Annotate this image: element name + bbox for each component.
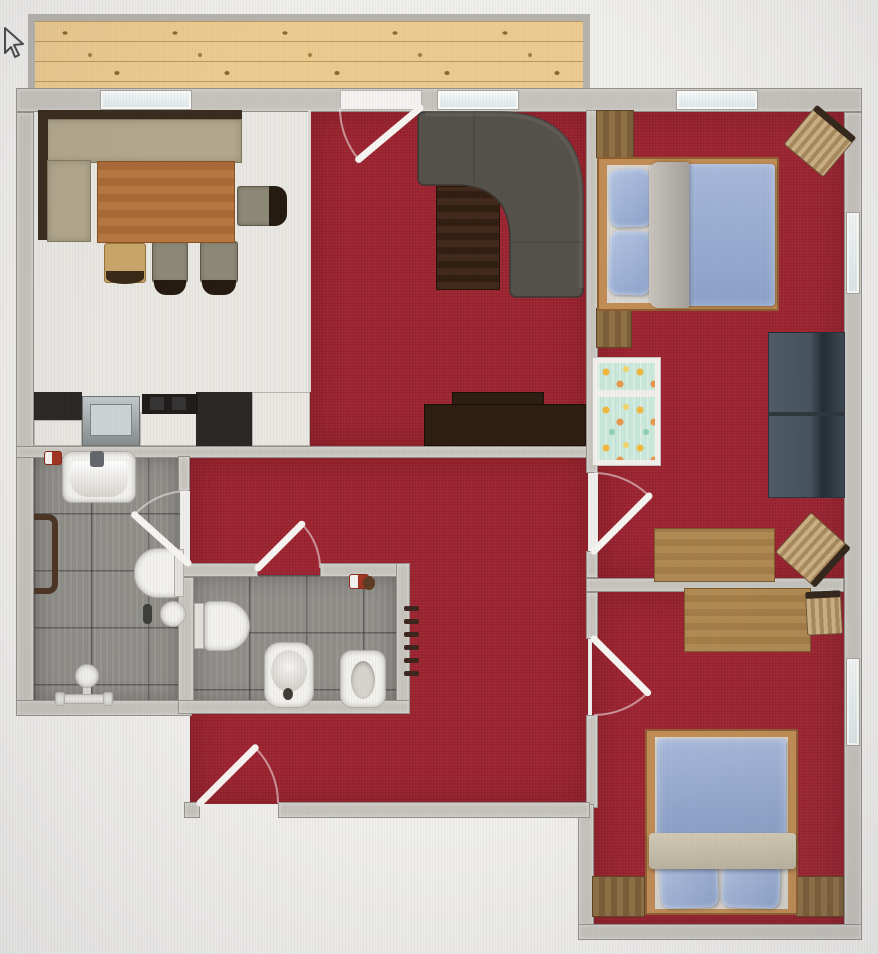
shower-cap-right <box>103 692 113 706</box>
dining-chair-2-seat <box>200 241 238 283</box>
bath-right-wall <box>178 456 190 491</box>
kitchen-cabinet-mid <box>140 412 204 446</box>
balcony-deck <box>28 14 590 90</box>
shower-cap-left <box>55 692 65 706</box>
kids-room-door-swing <box>588 467 660 559</box>
washbasin-faucet <box>90 451 104 467</box>
dining-table <box>97 161 235 243</box>
bedroom-bottom-wall <box>578 924 862 940</box>
stove-burner-b <box>172 397 186 410</box>
bedroom-side-window <box>846 658 860 746</box>
bedroom-left-wall-b <box>586 715 598 808</box>
wc-bidet-bowl <box>271 650 307 692</box>
bedroom-desk <box>684 588 811 652</box>
radiator-tick-4 <box>404 645 419 650</box>
left-wall <box>16 112 34 716</box>
wc-bidet-faucet <box>283 688 293 700</box>
kitchen-sink-basin <box>90 404 132 436</box>
baby-crib <box>593 358 660 465</box>
double-bed-duvet-blue <box>687 164 775 306</box>
kitchen-cabinet-right <box>252 392 310 446</box>
radiator-tick-5 <box>404 658 419 663</box>
bed2-duvet-blue <box>657 739 786 837</box>
kitchen-fridge-unit <box>196 392 252 446</box>
radiator-tick-2 <box>404 619 419 624</box>
corner-bench-seat-top <box>44 119 242 163</box>
dining-chair-right-seat <box>237 186 273 226</box>
double-bed-pillow-a <box>608 168 652 227</box>
wc-tissue-blob <box>363 576 375 590</box>
wc-door-swing <box>252 502 328 576</box>
wc-toilet-tank <box>194 603 204 649</box>
kids-room-side-window <box>846 212 860 294</box>
bedroom-desk-chair <box>805 590 843 636</box>
bedroom-wood-strip-left <box>592 876 645 917</box>
wc-urinal-bowl <box>351 661 375 699</box>
towel-radiator <box>34 514 58 594</box>
radiator-tick-6 <box>404 671 419 676</box>
mouse-cursor <box>2 26 26 60</box>
kids-desk <box>654 528 775 582</box>
soap-dish <box>44 451 62 465</box>
curved-sectional-sofa <box>414 106 590 302</box>
corner-bench-seat-left <box>47 160 91 242</box>
dining-chair-right-frame <box>269 186 287 226</box>
double-bed-pillow-b <box>608 230 652 295</box>
dining-chair-1-seat <box>152 241 188 283</box>
bedroom-left-wall-a <box>586 592 598 639</box>
tv-board-main <box>424 404 586 446</box>
double-bed-duvet-gray <box>649 162 689 308</box>
floor-split-line <box>308 110 311 392</box>
radiator-tick-1 <box>404 606 419 611</box>
bathroom-door-swing <box>112 487 196 571</box>
radiator-tick-3 <box>404 632 419 637</box>
kitchen-counter-dark <box>34 392 82 420</box>
wardrobe-lower <box>596 308 632 348</box>
balcony-door-swing <box>335 103 427 195</box>
wooden-chair-back <box>106 271 144 284</box>
bedroom-door-swing <box>588 633 656 723</box>
kitchen-cabinet-left <box>34 420 82 446</box>
toilet-brush <box>143 604 152 624</box>
bed2-blanket <box>649 833 796 869</box>
baby-crib-divider <box>598 390 655 397</box>
kids-room-top-window <box>676 90 758 110</box>
hall-bottom-wall-b <box>278 802 590 818</box>
slate-sofa-seam <box>768 412 845 416</box>
dining-chair-2-base <box>202 280 236 295</box>
stove-burner-a <box>150 397 164 410</box>
entrance-door-swing <box>194 722 282 810</box>
kitchen-window <box>100 90 192 110</box>
bedroom-wood-strip-right <box>796 876 844 917</box>
shower-head <box>75 664 99 688</box>
bath-stool <box>160 601 186 627</box>
wardrobe-upper <box>596 110 634 158</box>
floor-plan-canvas <box>0 0 878 954</box>
